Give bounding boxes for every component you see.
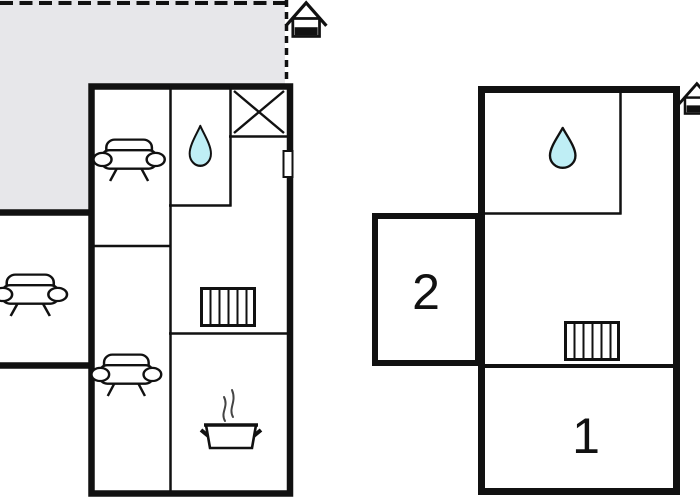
room-1-label: 1 bbox=[572, 408, 600, 464]
building-left bbox=[89, 86, 293, 494]
door-marker bbox=[284, 151, 293, 177]
pot-body bbox=[206, 425, 256, 448]
floor-plan-drawing: 2 1 bbox=[0, 0, 700, 500]
radiator-icon bbox=[566, 323, 619, 360]
terrace-fill-left bbox=[0, 84, 88, 213]
radiator-icon bbox=[202, 289, 255, 326]
terrace-fill-top bbox=[0, 0, 285, 84]
floor-plan: 2 1 bbox=[0, 0, 700, 500]
house-entrance-icon bbox=[679, 84, 700, 114]
room-2-label: 2 bbox=[412, 264, 440, 320]
sofa-icon bbox=[0, 275, 67, 316]
building-right: 2 1 bbox=[375, 88, 678, 492]
house-entrance-icon bbox=[286, 3, 326, 37]
